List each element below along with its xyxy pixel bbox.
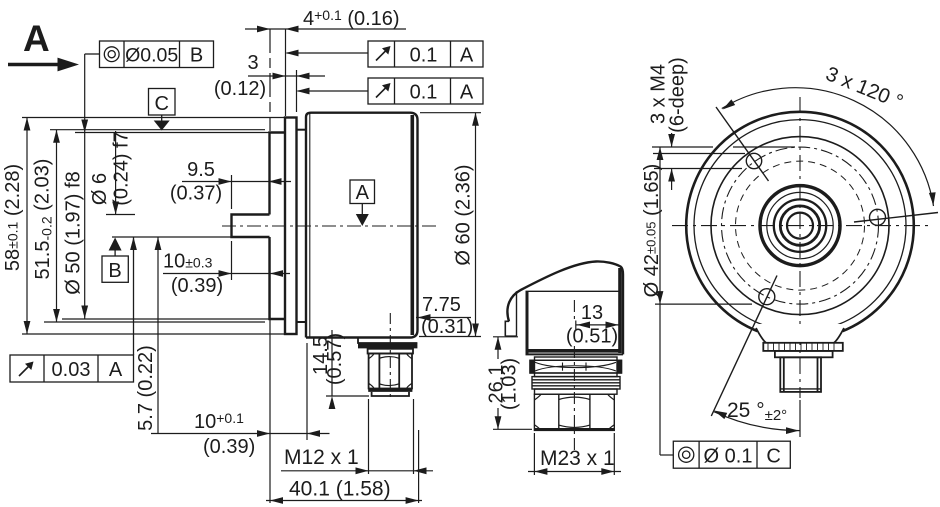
svg-text:A: A xyxy=(460,45,474,67)
svg-text:51.5-0.2 (2.03): 51.5-0.2 (2.03) xyxy=(32,159,54,280)
svg-text:M23 x 1: M23 x 1 xyxy=(540,447,615,470)
svg-text:0.1: 0.1 xyxy=(410,82,438,104)
svg-text:40.1 (1.58): 40.1 (1.58) xyxy=(289,478,391,501)
svg-text:(0.31): (0.31) xyxy=(421,316,473,338)
svg-text:(1.03): (1.03) xyxy=(498,358,520,410)
svg-text:13: 13 xyxy=(581,302,603,324)
svg-text:9.5: 9.5 xyxy=(187,159,215,181)
svg-text:(0.57): (0.57) xyxy=(324,333,346,385)
svg-text:7.75: 7.75 xyxy=(422,294,461,316)
svg-text:10+0.1: 10+0.1 xyxy=(194,410,244,433)
svg-text:Ø 60 (2.36): Ø 60 (2.36) xyxy=(452,164,474,265)
svg-text:(0.12): (0.12) xyxy=(214,78,266,100)
svg-text:3: 3 xyxy=(247,52,258,74)
svg-text:A: A xyxy=(23,18,50,59)
svg-text:Ø 0.1: Ø 0.1 xyxy=(704,446,753,468)
svg-text:(0.39): (0.39) xyxy=(171,275,223,297)
svg-text:25 °±2°: 25 °±2° xyxy=(727,399,787,424)
svg-text:(0.24) f7: (0.24) f7 xyxy=(110,131,132,205)
svg-text:Ø0.05: Ø0.05 xyxy=(125,45,178,67)
svg-text:Ø 6: Ø 6 xyxy=(89,173,111,205)
svg-text:10±0.3: 10±0.3 xyxy=(163,251,213,273)
svg-text:C: C xyxy=(154,93,168,115)
svg-text:0.1: 0.1 xyxy=(410,45,438,67)
svg-text:(6-deep): (6-deep) xyxy=(666,57,688,133)
svg-text:(0.37): (0.37) xyxy=(170,183,222,205)
svg-text:B: B xyxy=(190,45,203,67)
svg-text:4+0.1 (0.16): 4+0.1 (0.16) xyxy=(303,7,400,30)
svg-text:A: A xyxy=(356,182,370,204)
svg-text:C: C xyxy=(766,446,780,468)
svg-text:(0.39): (0.39) xyxy=(203,436,255,458)
svg-text:A: A xyxy=(109,359,123,381)
svg-text:A: A xyxy=(460,82,474,104)
svg-text:58±0.1 (2.28): 58±0.1 (2.28) xyxy=(2,164,24,271)
svg-text:B: B xyxy=(108,260,121,282)
svg-text:M12 x 1: M12 x 1 xyxy=(284,446,359,469)
svg-text:5.7 (0.22): 5.7 (0.22) xyxy=(135,345,157,431)
svg-text:(0.51): (0.51) xyxy=(566,326,618,348)
svg-text:0.03: 0.03 xyxy=(52,359,91,381)
svg-text:Ø 50 (1.97) f8: Ø 50 (1.97) f8 xyxy=(62,171,84,294)
